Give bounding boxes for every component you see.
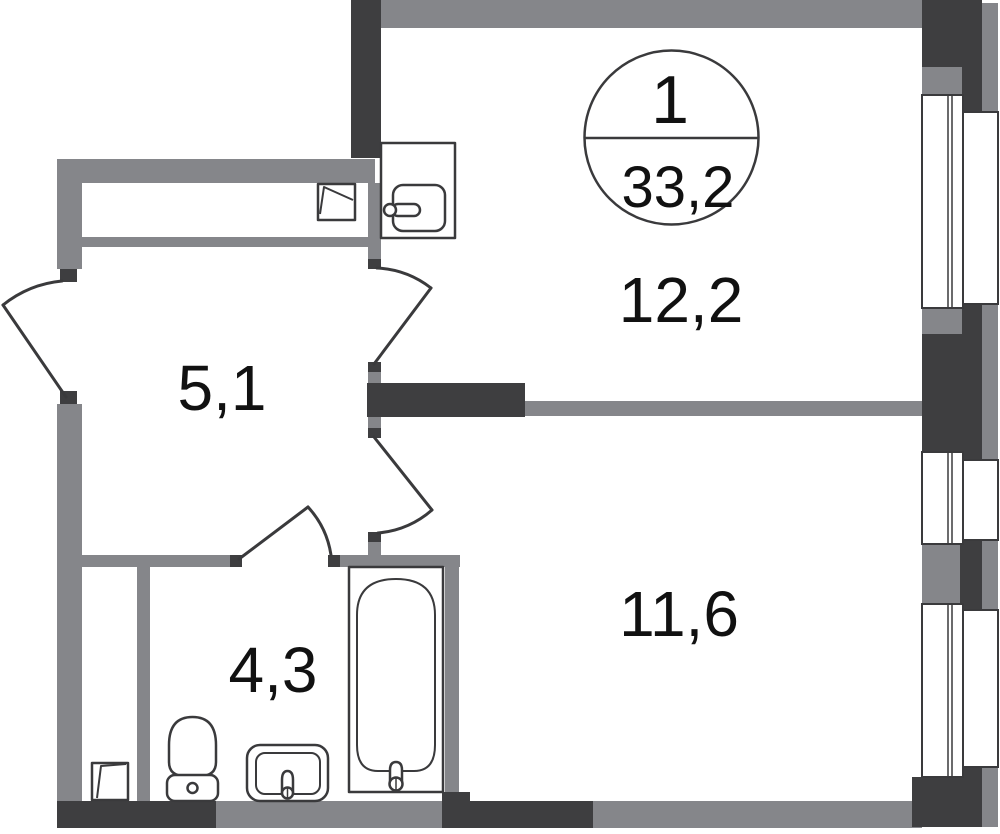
label-bedroom-area: 11,6 — [619, 578, 739, 650]
vent-hatch-top-icon — [318, 184, 355, 220]
wall-bottom-seg1 — [57, 801, 216, 828]
window-sill-top-lower — [922, 308, 962, 334]
bathtub-outer — [349, 567, 443, 792]
floor-plan-drawing: 12,2 11,6 5,1 4,3 1 33,2 — [0, 0, 1000, 834]
wall-bath-top-right — [340, 555, 460, 567]
window-pier-mid — [922, 544, 960, 604]
window-middle-outer-pane — [963, 460, 998, 540]
label-hallway-area: 5,1 — [178, 352, 267, 424]
kitchen-sink-icon — [381, 143, 455, 238]
jamb-bath-corner — [442, 792, 470, 812]
wall-room-divider-thin — [525, 401, 923, 416]
wall-bath-top-left — [80, 555, 230, 567]
wall-hall-divider-2 — [368, 372, 381, 384]
label-bathroom-area: 4,3 — [229, 634, 318, 706]
window-top-outer-pane — [963, 112, 998, 304]
bathtub-icon — [349, 567, 443, 792]
washbasin-icon — [247, 745, 328, 801]
apartment-badge: 1 33,2 — [585, 51, 759, 225]
wall-top-chunk — [351, 0, 381, 158]
window-middle-frame — [922, 452, 963, 544]
wall-left-upper — [57, 159, 82, 269]
wall-bottom-seg4 — [593, 801, 922, 828]
wall-room-divider-chunk — [367, 383, 525, 417]
wall-left-lower — [57, 404, 82, 801]
wall-vestibule-top — [57, 159, 375, 183]
vent-hatch-bottom-icon — [92, 763, 128, 800]
wall-hall-divider-1 — [368, 183, 381, 259]
label-kitchen-living-room-area: 12,2 — [619, 264, 744, 336]
sink-faucet-ring — [384, 204, 396, 216]
wall-bath-right — [445, 555, 459, 792]
wall-bottom-seg2 — [216, 801, 442, 828]
window-bottom-outer-pane — [963, 610, 998, 767]
window-middle-icon — [922, 452, 998, 544]
window-sill-top-upper — [922, 67, 962, 95]
floor-plan: 12,2 11,6 5,1 4,3 1 33,2 — [0, 0, 1000, 834]
toilet-flush-button — [188, 783, 198, 793]
wall-vestibule-bottom — [80, 237, 368, 247]
toilet-bowl — [169, 717, 216, 776]
wall-hall-divider-3 — [368, 416, 381, 428]
window-bottom-icon — [922, 604, 998, 777]
wall-hall-divider-4 — [368, 542, 381, 557]
window-top-frame — [922, 95, 963, 308]
badge-total-area: 33,2 — [622, 155, 735, 220]
toilet-icon — [167, 717, 218, 801]
jamb-bath-right — [328, 555, 340, 567]
wall-bath-left — [137, 555, 150, 801]
wall-right-bottom-block — [912, 777, 982, 827]
wall-top — [381, 0, 923, 28]
badge-rooms-count: 1 — [651, 62, 689, 138]
window-top-icon — [922, 95, 998, 308]
window-bottom-frame — [922, 604, 963, 777]
